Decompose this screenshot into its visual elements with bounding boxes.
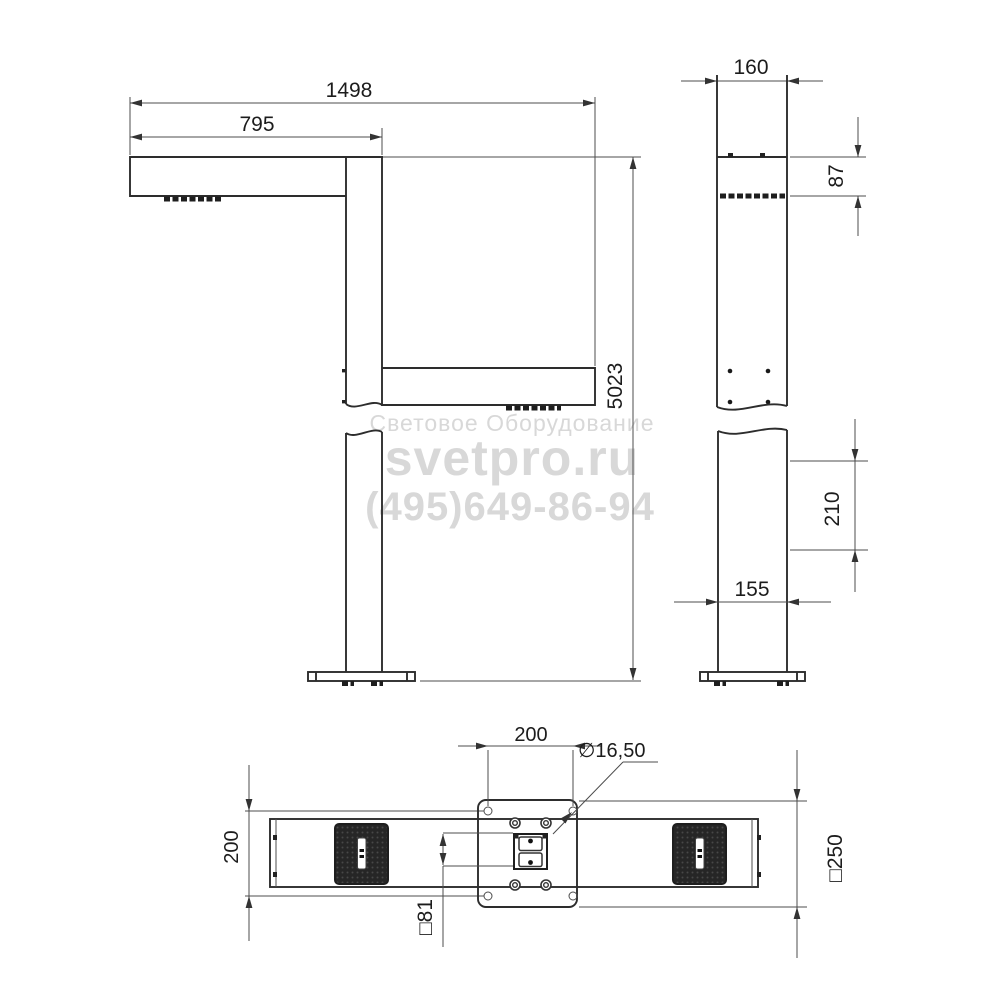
bolt-mark (342, 369, 345, 372)
dimension-arm-span: 1498 (130, 79, 595, 103)
pole-drawing-svg: Световое Оборудование svetpro.ru (495)64… (0, 0, 1000, 1000)
pole-break-wave (346, 403, 382, 407)
bolt-dot (728, 369, 733, 374)
leader-arrowhead (561, 812, 573, 824)
dimension-bracket-offset: 210 (790, 419, 868, 592)
dim-795-label: 795 (239, 113, 274, 136)
led-slot (696, 838, 705, 869)
dimension-pole-width-bottom: 155 (674, 578, 831, 602)
base-plate-outline (308, 672, 415, 681)
dim-81-label: □81 (414, 899, 437, 935)
dimension-inner-square: □81 (414, 833, 513, 947)
dim-155-label: 155 (734, 578, 769, 601)
led-slot-mark (698, 855, 703, 858)
dim-250-label: □250 (824, 834, 847, 882)
dim-200-left-label: 200 (221, 830, 243, 863)
bracket-corner-mark (515, 835, 519, 839)
mount-hole (484, 807, 492, 815)
side-view: 160 87 210 (674, 56, 868, 684)
led-slot-mark (360, 855, 365, 858)
watermark-line3: (495)649-86-94 (365, 485, 655, 529)
washer-hole-inner (513, 821, 518, 826)
dim-210-label: 210 (821, 491, 844, 526)
dimension-hole-spacing-vertical: 200 (221, 765, 249, 941)
dim-160-label: 160 (733, 56, 768, 79)
dim-5023-label: 5023 (604, 363, 627, 410)
led-module-right (673, 824, 726, 884)
dim-87-label: 87 (825, 164, 848, 187)
bolt-mark (728, 153, 733, 157)
washer-hole-inner (544, 821, 549, 826)
end-tab (757, 835, 761, 840)
led-slot (358, 838, 367, 869)
bolt-dot (728, 400, 733, 405)
end-tab (273, 835, 277, 840)
mounting-plate (478, 800, 577, 907)
dimension-hole-spacing-horizontal: 200 (458, 724, 602, 806)
dimension-front-arm: 795 (130, 113, 382, 137)
bolt-dot (766, 369, 771, 374)
end-tab (273, 872, 277, 877)
technical-drawing-page: Световое Оборудование svetpro.ru (495)64… (0, 0, 1000, 1000)
bracket-bolt (528, 839, 533, 844)
dim-1498-label: 1498 (326, 79, 373, 102)
pole-break-wave (717, 404, 787, 409)
front-view: 1498 795 5023 (130, 79, 641, 684)
base-plate-side (700, 672, 805, 684)
dim-200-top-label: 200 (514, 724, 547, 746)
led-slot-mark (360, 849, 365, 852)
base-plate-front (308, 672, 415, 684)
washer-hole-inner (513, 883, 518, 888)
base-plate-outline (700, 672, 805, 681)
washer-hole-inner (544, 883, 549, 888)
pole-break-wave (718, 429, 787, 434)
bottom-view: 200 ∅16,50 200 □250 (221, 724, 847, 958)
mount-hole (484, 892, 492, 900)
dimension-pole-width-top: 160 (681, 56, 823, 81)
bracket-corner-mark (543, 835, 547, 839)
dim-hole-diameter-label: ∅16,50 (578, 740, 645, 762)
bracket-bolt (528, 860, 533, 865)
leader-line (553, 762, 623, 834)
center-bracket (514, 834, 547, 869)
end-tab (757, 872, 761, 877)
bolt-mark (760, 153, 765, 157)
dimension-arm-section-height: 87 (790, 117, 866, 236)
watermark: Световое Оборудование svetpro.ru (495)64… (365, 410, 655, 529)
led-slot-mark (698, 849, 703, 852)
bolt-mark (342, 400, 345, 403)
mount-hole (569, 892, 577, 900)
led-module-left (335, 824, 388, 884)
watermark-line2: svetpro.ru (385, 430, 640, 486)
